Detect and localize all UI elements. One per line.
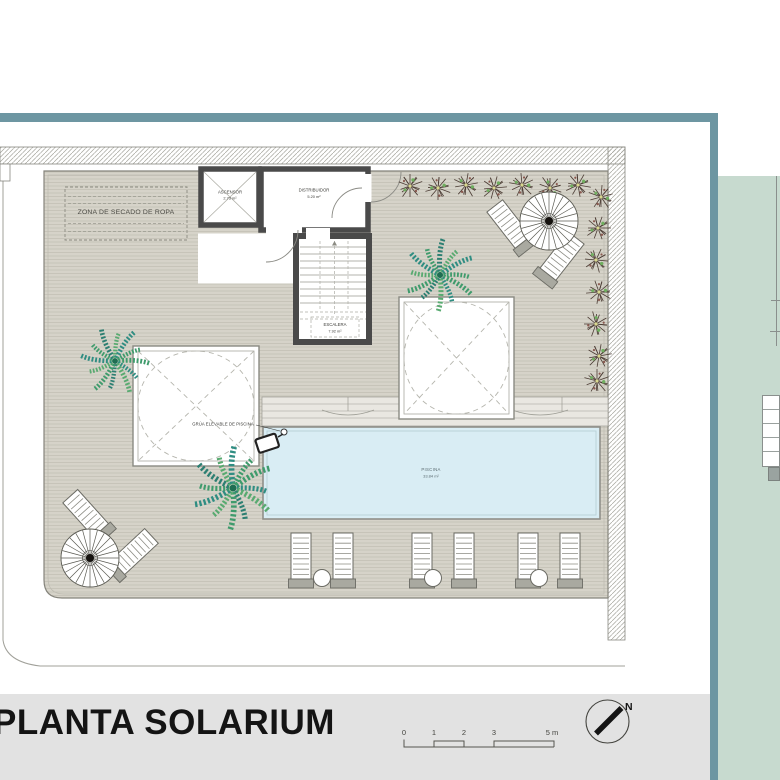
door-apron — [198, 234, 293, 284]
stairs-label: ESCALERA — [324, 322, 347, 327]
scale-tick-2: 2 — [462, 728, 466, 737]
hall-room: DISTRIBUIDOR 5.20 m² — [261, 169, 372, 234]
pool-label: PISCINA — [421, 467, 440, 472]
hall-area: 5.20 m² — [307, 194, 321, 199]
skylight-right — [399, 297, 514, 419]
scale-tick-3: 3 — [492, 728, 496, 737]
drying-zone-label: ZONA DE SECADO DE ROPA — [78, 209, 175, 216]
scale-bar: 0 1 2 3 5 m — [402, 728, 558, 747]
scale-end-label: 5 m — [546, 728, 559, 737]
floor-plan-drawing: ZONA DE SECADO DE ROPA PISCINA 33.84 m² … — [0, 0, 780, 780]
fan-palm-bottom-left — [61, 529, 119, 587]
scale-tick-0: 0 — [402, 728, 406, 737]
fan-palm-top-right — [520, 192, 578, 250]
stairs-room: ESCALERA 7.92 m² — [296, 228, 369, 342]
elevator-room: ASCENSOR 2.73 m² — [201, 169, 259, 225]
stairs-area: 7.92 m² — [328, 329, 342, 334]
skylight-left — [133, 346, 259, 466]
pool-area: 33.84 m² — [423, 474, 439, 479]
elevator-area: 2.73 m² — [223, 196, 237, 201]
scale-tick-1: 1 — [432, 728, 436, 737]
hall-label: DISTRIBUIDOR — [299, 188, 330, 193]
pool: PISCINA 33.84 m² — [263, 427, 600, 519]
north-compass: N — [586, 700, 633, 743]
north-label: N — [625, 701, 633, 713]
pool-lift-label: GRÚA ELEVABLE DE PISCINA — [192, 422, 254, 427]
elevator-label: ASCENSOR — [218, 190, 242, 195]
drawing-sheet: PLANTA SOLARIUM — [0, 0, 780, 780]
